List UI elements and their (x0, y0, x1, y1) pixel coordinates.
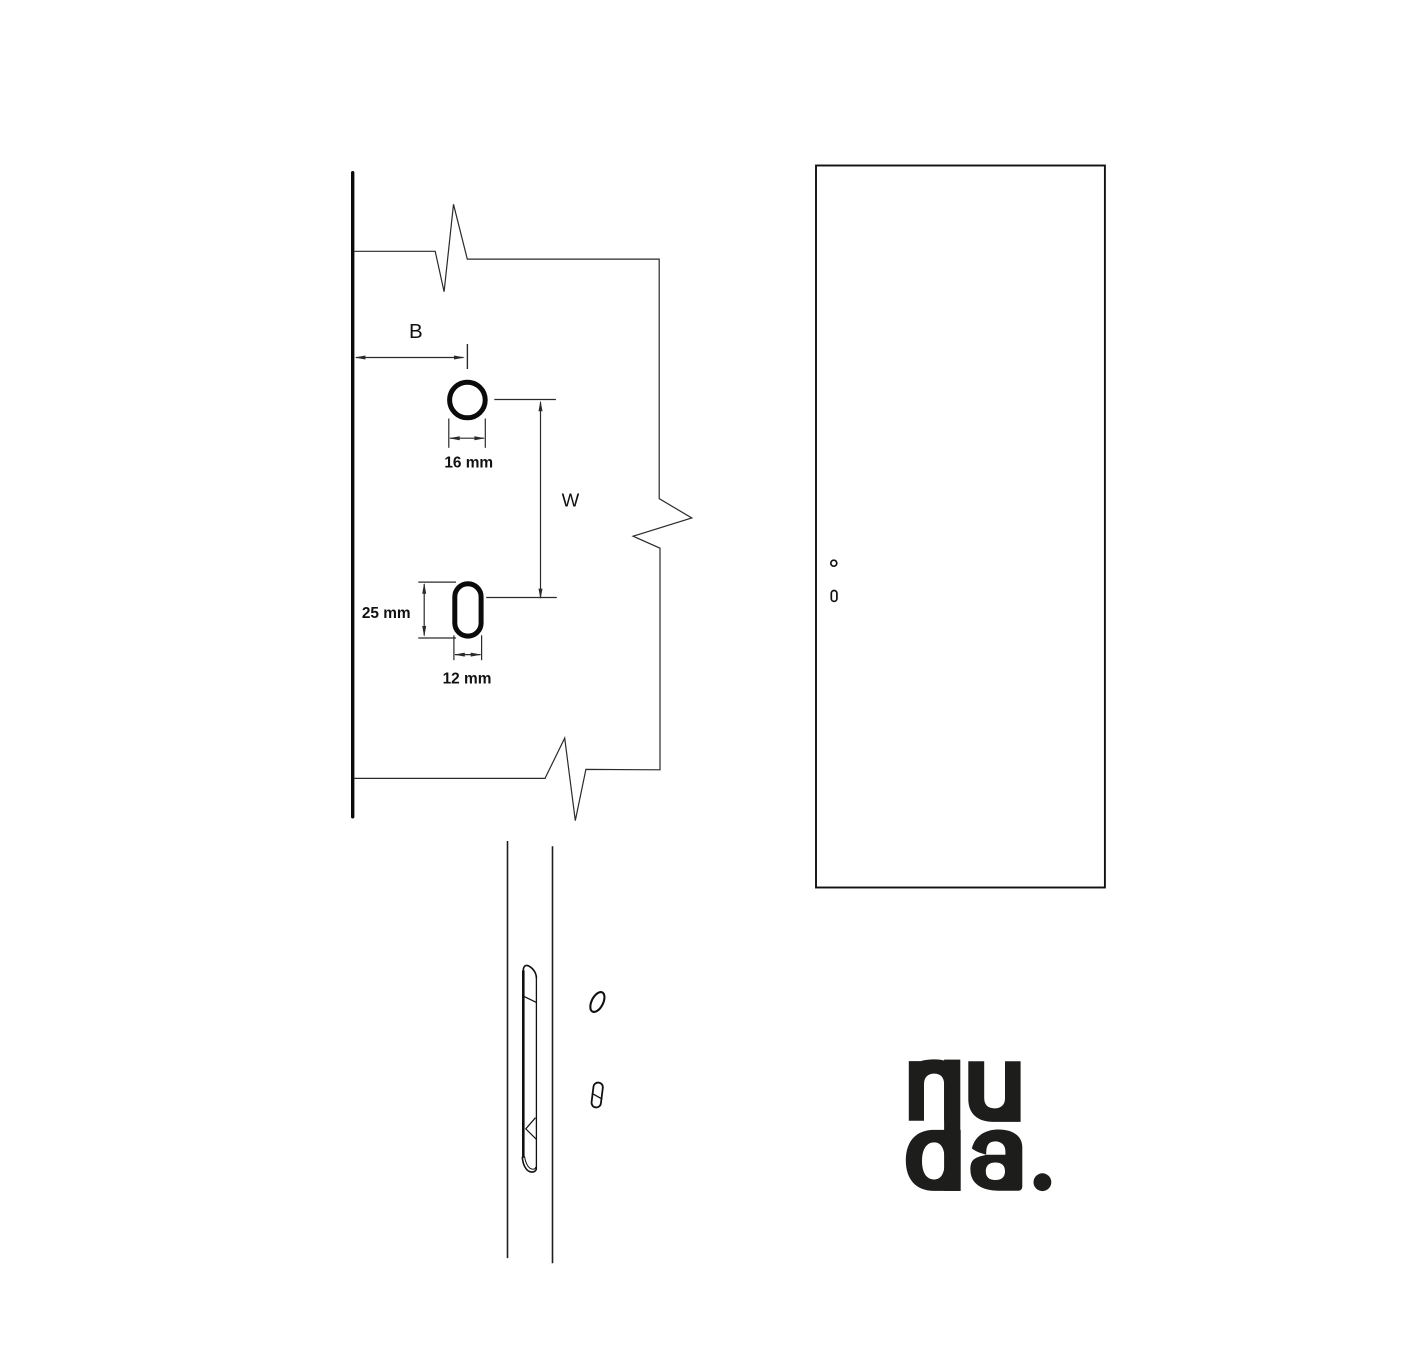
svg-text:B: B (409, 320, 423, 343)
svg-text:16 mm: 16 mm (444, 455, 493, 472)
svg-text:25 mm: 25 mm (362, 605, 411, 622)
svg-text:12 mm: 12 mm (443, 670, 492, 687)
svg-text:W: W (562, 489, 580, 510)
